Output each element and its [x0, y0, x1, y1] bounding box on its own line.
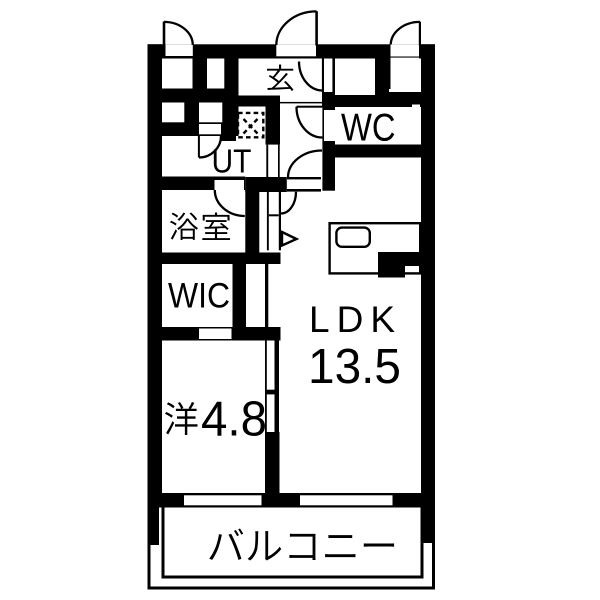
- svg-text:WC: WC: [341, 106, 396, 149]
- svg-text:13.5: 13.5: [308, 340, 401, 394]
- svg-text:LDK: LDK: [309, 299, 395, 340]
- svg-text:4.8: 4.8: [201, 392, 267, 447]
- svg-text:WIC: WIC: [168, 276, 230, 315]
- svg-text:UT: UT: [212, 142, 252, 179]
